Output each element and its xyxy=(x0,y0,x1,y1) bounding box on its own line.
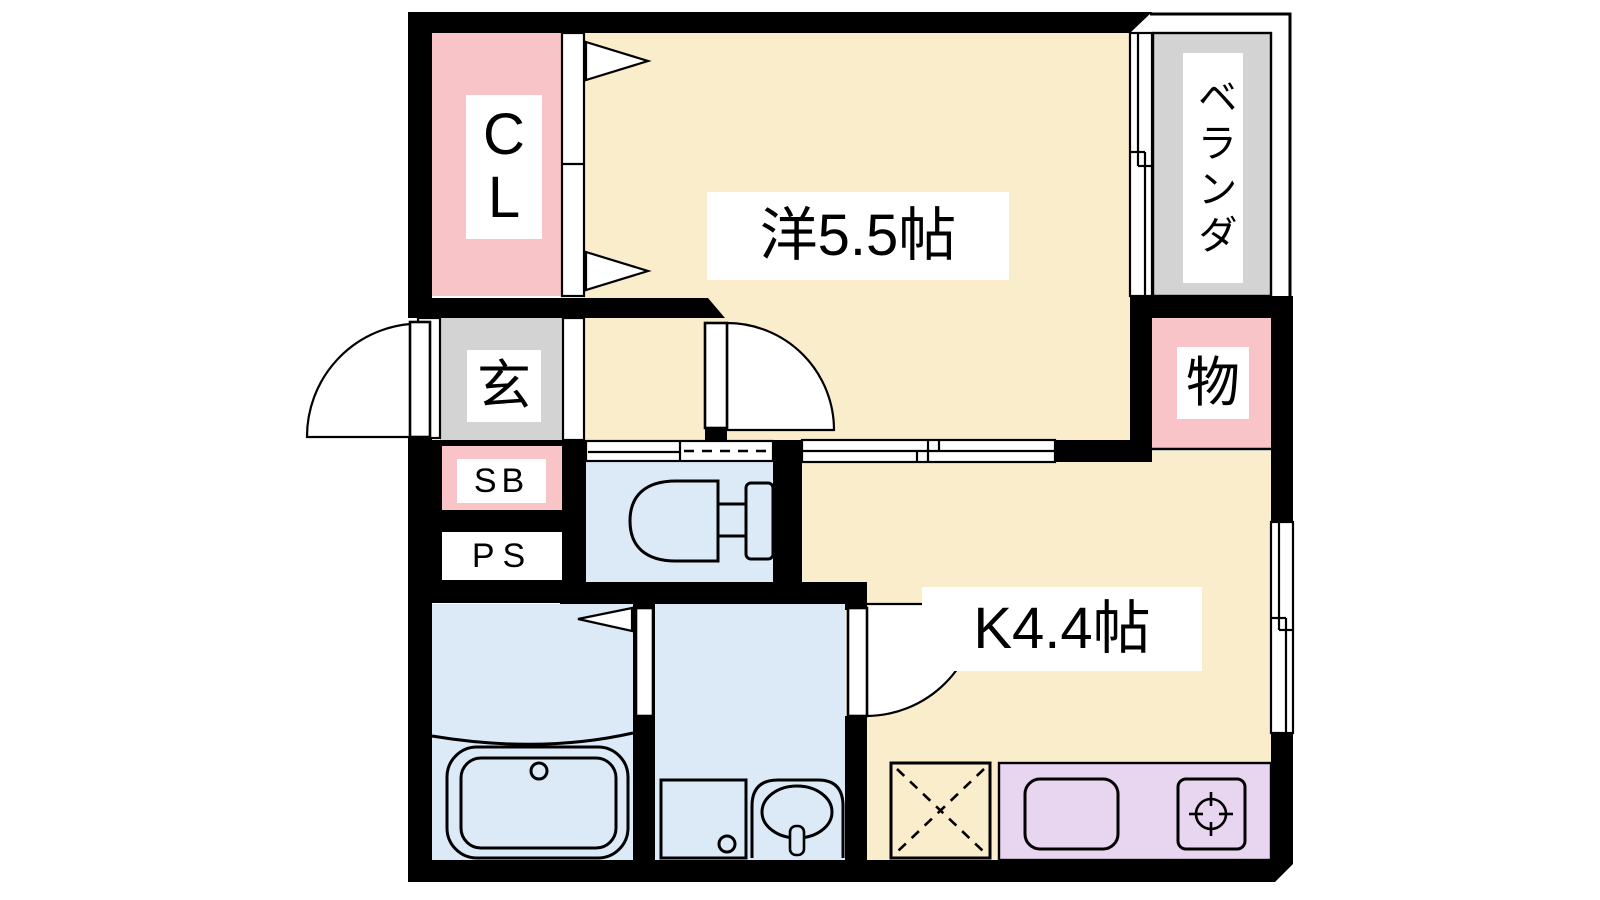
storage-label: 物 xyxy=(1177,347,1249,419)
entrance-passage-jamb xyxy=(563,318,584,440)
wall-below-closet xyxy=(420,298,725,318)
wall-top xyxy=(408,12,1152,33)
closet-label: C L xyxy=(466,95,542,239)
wall-storage-top xyxy=(1130,296,1293,318)
entrance-door-swing-icon xyxy=(307,324,420,437)
wall-left-lower xyxy=(408,438,432,882)
wall-left-upper xyxy=(408,12,432,318)
wall-right-lower xyxy=(1271,733,1293,882)
wall-washroom-right xyxy=(845,716,867,860)
washroom-floor xyxy=(655,604,845,860)
floor-plan: C L 洋5.5帖 ベランダ 物 玄 SB PS K4.4帖 xyxy=(0,0,1600,900)
floor-plan-svg xyxy=(0,0,1600,900)
wall-right-upper xyxy=(1271,296,1293,522)
kitchen-sliding-window-icon xyxy=(1271,522,1293,733)
wall-toilet-right xyxy=(773,440,802,582)
shoe-box-label: SB xyxy=(457,459,546,503)
wash-basin-tap xyxy=(790,826,804,855)
corridor-floor xyxy=(584,318,705,440)
wall-bottom xyxy=(408,860,1293,882)
wall-divider-right xyxy=(1055,440,1152,462)
pipe-space-label: PS xyxy=(443,533,562,580)
veranda-sliding-window-icon xyxy=(1130,33,1152,296)
kitchen-label: K4.4帖 xyxy=(922,587,1202,671)
entrance-label: 玄 xyxy=(467,350,541,422)
corridor-door-leaf xyxy=(705,323,727,428)
western-room-label: 洋5.5帖 xyxy=(707,192,1009,280)
wall-storage-left xyxy=(1130,296,1152,452)
entry-door-leaf xyxy=(410,322,430,437)
bathroom-door-leaf xyxy=(636,608,653,716)
wall-toilet-bottom xyxy=(560,582,867,604)
veranda-label: ベランダ xyxy=(1183,53,1243,283)
kitchen-floor-upper xyxy=(1152,451,1271,463)
kitchen-door-leaf xyxy=(848,608,867,716)
wall-corridor-door-nub xyxy=(705,428,727,440)
